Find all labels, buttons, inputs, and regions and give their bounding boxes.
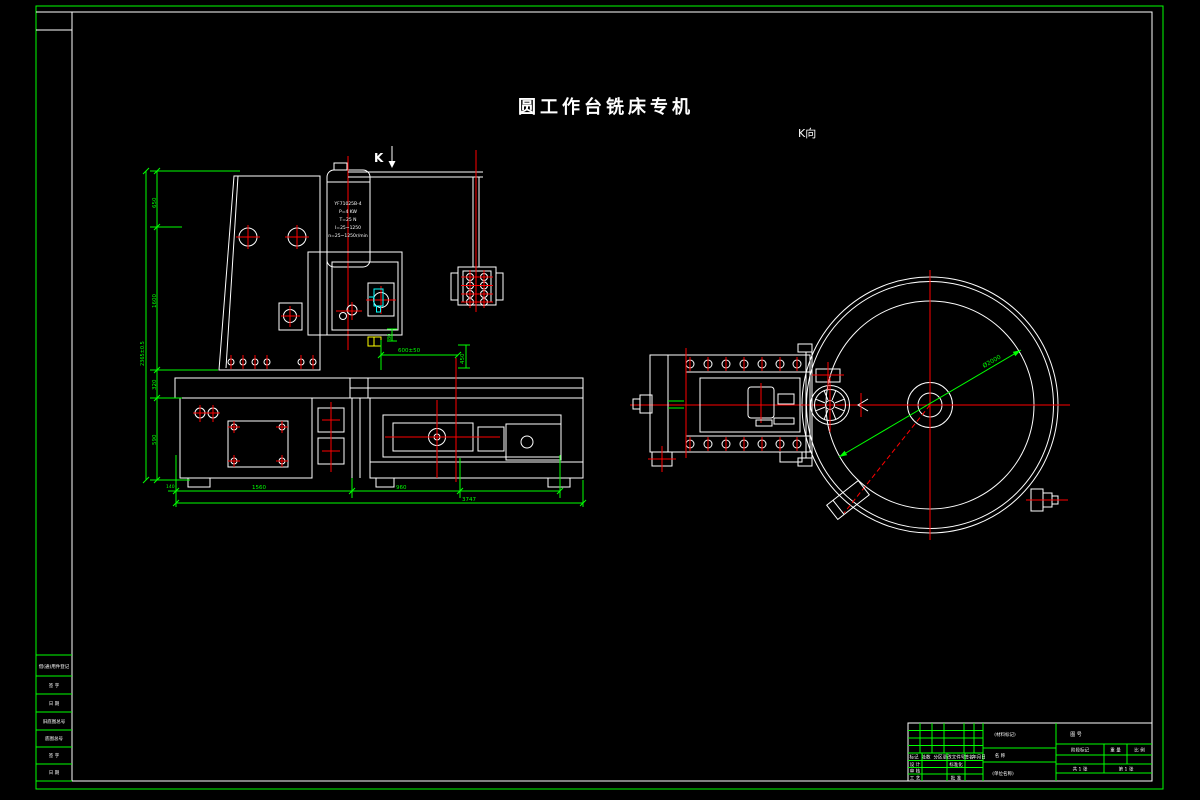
margin-label: 日 期 <box>49 770 60 776</box>
machine-bed <box>175 358 583 487</box>
dim-bottom-total: 3747 <box>462 497 476 503</box>
tb-role-check: 审 核 <box>910 768 921 775</box>
motor-spec-line: I=25~1250 <box>335 225 361 231</box>
tb-role-standard: 标准化 <box>949 761 963 768</box>
dim-left-mid: 1600 <box>152 294 158 308</box>
dim-left-low: 320 <box>152 379 158 390</box>
tb-sheet-number: 第 1 张 <box>1119 766 1134 773</box>
margin-label: 日 期 <box>49 701 60 707</box>
margin-label: 签 字 <box>49 682 60 689</box>
margin-label: 底图总号 <box>45 735 63 742</box>
tb-role-design: 设 计 <box>910 761 921 768</box>
k-arrow-label: K <box>374 151 384 165</box>
column <box>219 176 320 370</box>
title-block: 标记 处数 分区 更改文件号 签名 年月日 设 计 标准化 审 核 工 艺 批 … <box>908 723 1152 782</box>
tb-weight: 重 量 <box>1110 747 1121 754</box>
margin-label: 旧底图总号 <box>43 718 66 725</box>
overarm-and-flange <box>348 150 503 312</box>
motor-spec-line: n=25~1250r/min <box>328 233 368 239</box>
tb-header: 处数 <box>922 754 931 761</box>
front-view: YF71025B-4 P=4 KW T=25 N I=25~1250 n=25~… <box>140 146 586 507</box>
motor-spec-line: YF71025B-4 <box>333 201 361 207</box>
tb-name-label: 名 称 <box>995 752 1006 759</box>
dim-bottom-2: 960 <box>396 485 407 491</box>
dim-spindle-gap: 80 <box>387 334 393 340</box>
dim-left-top: 650 <box>152 197 158 208</box>
margin-label: 借(通)用件登记 <box>39 663 70 670</box>
k-view: Ø2000 <box>630 270 1070 540</box>
tb-role-approve: 批 准 <box>951 775 962 782</box>
dim-saddle: 450 <box>460 353 466 364</box>
tb-material-mark: (材料标记) <box>994 731 1016 738</box>
tb-unit-name: (单位名称) <box>992 770 1014 777</box>
tb-header: 更改文件号 <box>943 754 966 761</box>
spindle-head <box>308 252 402 346</box>
clamp-symbol-cyan <box>374 289 383 306</box>
k-direction-arrow: K <box>374 146 396 168</box>
tb-drawing-code: 图 号 <box>1070 732 1082 738</box>
tb-sheet-total: 共 1 张 <box>1073 766 1088 773</box>
dim-bottom-small: 140 <box>166 484 175 490</box>
drawing-title: 圆工作台铣床专机 <box>518 96 694 118</box>
tb-header: 分区 <box>934 754 943 761</box>
tb-header: 年月日 <box>972 754 986 761</box>
k-view-label: K向 <box>798 126 816 140</box>
front-view-dimensions: 2365±0.5 650 1600 320 590 140 1560 960 3… <box>140 168 586 507</box>
spindle-motor: YF71025B-4 P=4 KW T=25 N I=25~1250 n=25~… <box>327 156 370 350</box>
motor-spec-line: T=25 N <box>338 217 356 223</box>
tb-header: 标记 <box>910 754 919 761</box>
margin-label: 签 字 <box>49 752 60 759</box>
tb-stage-mark: 阶段标记 <box>1071 747 1089 754</box>
dim-left-overall: 2365±0.5 <box>140 341 146 366</box>
side-fixture <box>1026 489 1068 511</box>
power-head-plan <box>633 344 868 472</box>
tb-role-process: 工 艺 <box>910 776 921 782</box>
dim-table-length: 600±50 <box>398 348 421 354</box>
dim-bottom-1: 1560 <box>252 485 266 491</box>
dim-left-lower: 590 <box>152 434 158 445</box>
motor-spec-line: P=4 KW <box>339 209 358 215</box>
cad-viewport[interactable]: 借(通)用件登记 签 字 日 期 旧底图总号 底图总号 签 字 日 期 圆工作台… <box>0 0 1200 800</box>
tb-scale: 比 例 <box>1134 747 1145 754</box>
